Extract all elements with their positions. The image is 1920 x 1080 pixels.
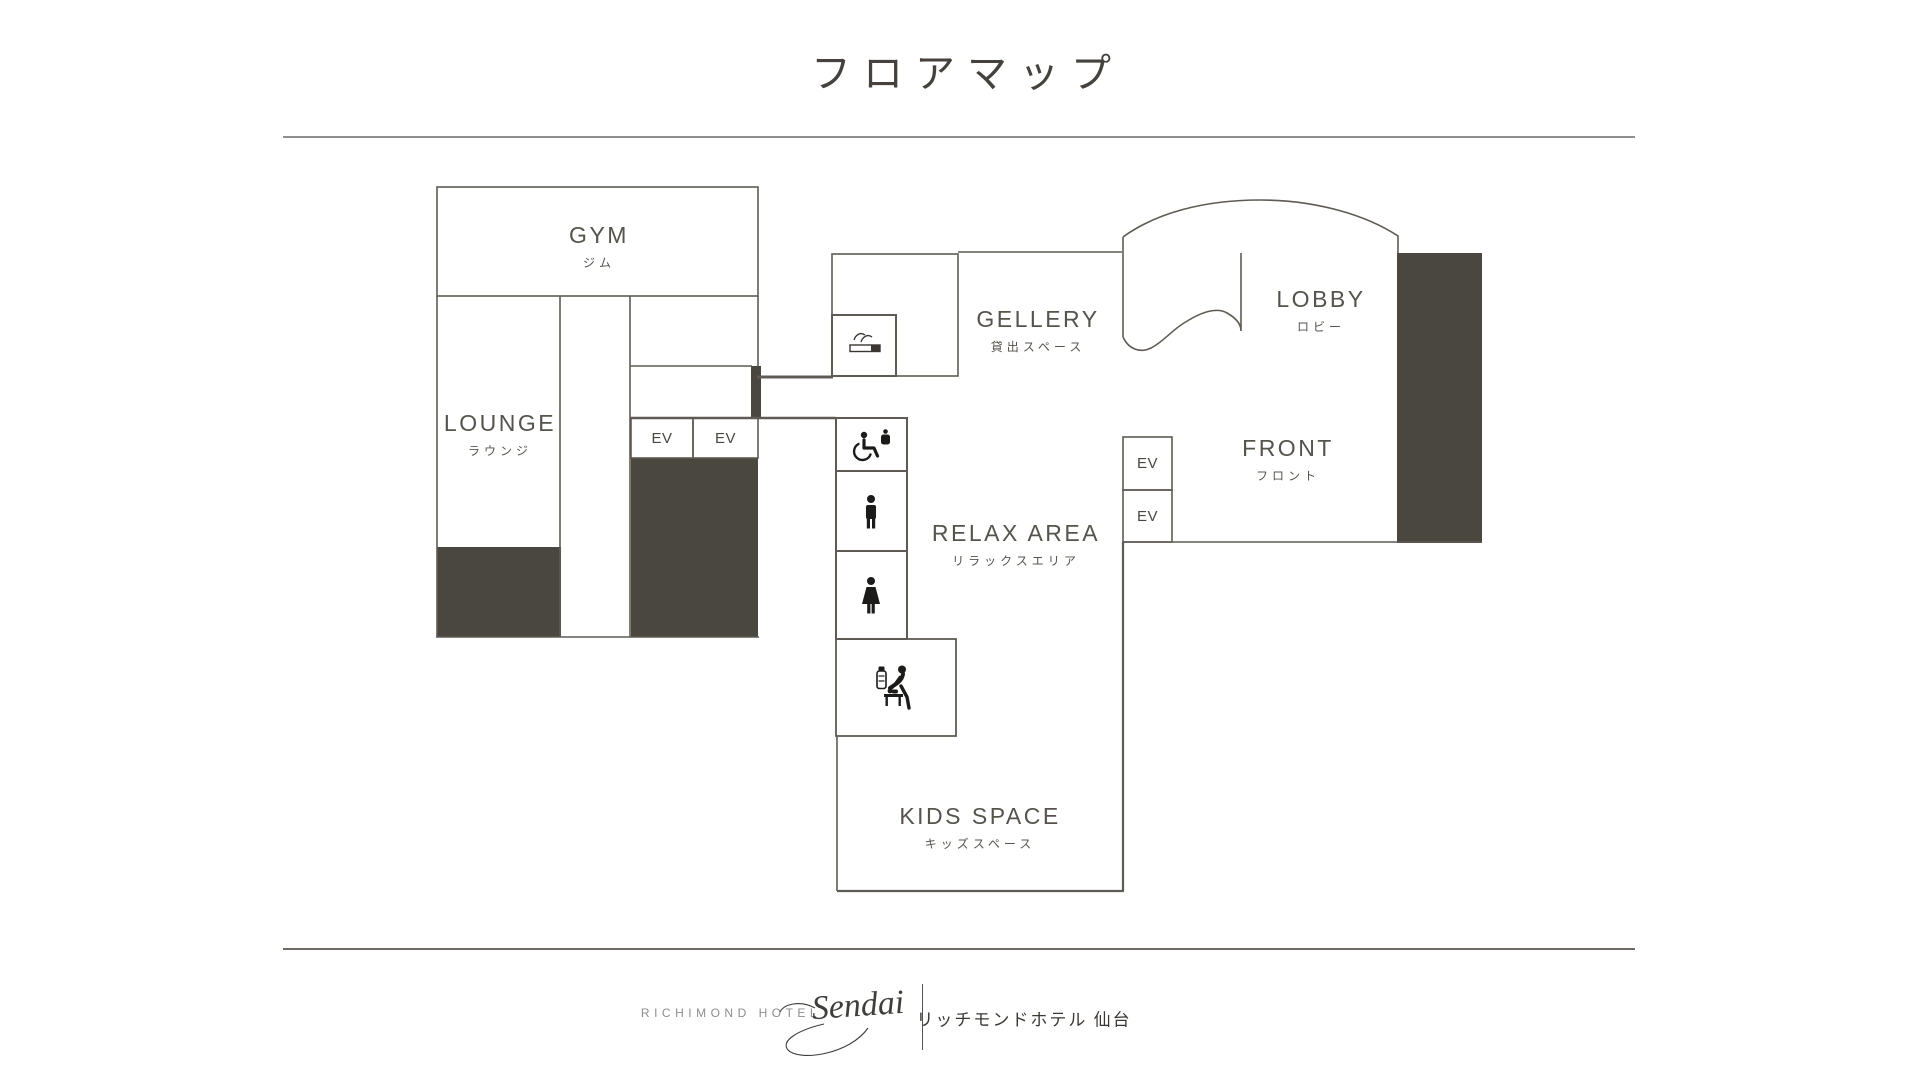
- baby-room-outline: [836, 639, 956, 736]
- wall-stub-dark: [751, 366, 761, 418]
- lounge-label-en: LOUNGE: [444, 410, 556, 436]
- mens-toilet-icon: [866, 495, 876, 529]
- front-label: FRONT フロント: [1242, 435, 1334, 483]
- lobby-label: LOBBY ロビー: [1276, 286, 1365, 334]
- relax-area-label-ja: リラックスエリア: [932, 554, 1100, 568]
- baby-room-icon: [877, 666, 909, 709]
- gym-label-ja: ジム: [569, 256, 629, 270]
- gym-label-en: GYM: [569, 222, 629, 248]
- lobby-label-en: LOBBY: [1276, 286, 1365, 312]
- kids-space-label: KIDS SPACE キッズスペース: [899, 803, 1060, 851]
- relax-area-label: RELAX AREA リラックスエリア: [932, 520, 1100, 568]
- relax-area-label-en: RELAX AREA: [932, 520, 1100, 546]
- elevator-left-2-label: EV: [693, 418, 758, 458]
- floor-map-page: フロアマップ: [0, 0, 1920, 1080]
- elevator-shaft-dark-block: [631, 458, 758, 637]
- lobby-arch-wall: [1123, 200, 1398, 253]
- right-dark-block: [1397, 253, 1482, 543]
- accessible-toilet-outline: [836, 418, 907, 471]
- womens-toilet-icon: [862, 577, 880, 614]
- lobby-label-ja: ロビー: [1276, 320, 1365, 334]
- lounge-label: LOUNGE ラウンジ: [444, 410, 556, 458]
- gellery-label: GELLERY 貸出スペース: [976, 306, 1099, 354]
- gym-label: GYM ジム: [569, 222, 629, 270]
- kids-space-label-en: KIDS SPACE: [899, 803, 1060, 829]
- lounge-label-ja: ラウンジ: [444, 444, 556, 458]
- front-label-ja: フロント: [1242, 469, 1334, 483]
- elevator-right-1-label: EV: [1123, 437, 1172, 490]
- smoking-icon: [850, 334, 880, 352]
- elevator-left-1-label: EV: [631, 418, 693, 458]
- gellery-label-en: GELLERY: [976, 306, 1099, 332]
- accessible-toilet-icon: [854, 429, 890, 460]
- lobby-curved-partition: [1123, 253, 1241, 350]
- front-label-en: FRONT: [1242, 435, 1334, 461]
- lounge-dark-block: [437, 547, 561, 637]
- kids-space-label-ja: キッズスペース: [899, 837, 1060, 851]
- elevator-right-2-label: EV: [1123, 490, 1172, 542]
- gellery-label-ja: 貸出スペース: [976, 340, 1099, 354]
